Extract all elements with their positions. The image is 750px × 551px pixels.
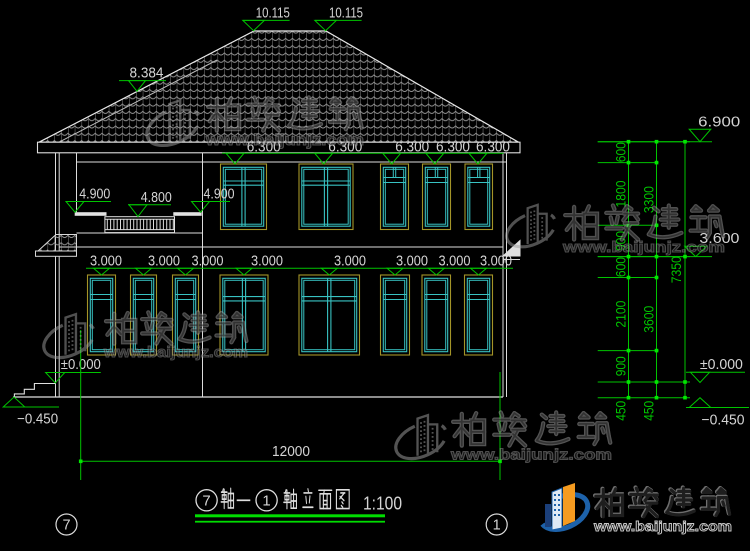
- svg-text:7350: 7350: [668, 256, 684, 283]
- svg-text:6.300: 6.300: [395, 139, 429, 155]
- svg-text:900: 900: [613, 356, 629, 376]
- svg-text:www.baijunjz.com: www.baijunjz.com: [593, 518, 732, 534]
- svg-text:8.384: 8.384: [130, 66, 164, 82]
- svg-text:www.baijunjz.com: www.baijunjz.com: [450, 447, 612, 464]
- svg-text:3.000: 3.000: [396, 253, 428, 269]
- svg-text:4.900: 4.900: [79, 186, 110, 202]
- svg-text:12000: 12000: [272, 444, 310, 460]
- svg-text:6.300: 6.300: [436, 139, 470, 155]
- svg-text:1800: 1800: [613, 180, 629, 207]
- svg-text:3.000: 3.000: [148, 253, 180, 269]
- svg-text:600: 600: [613, 257, 629, 277]
- svg-text:2100: 2100: [613, 300, 629, 327]
- svg-text:3.000: 3.000: [251, 253, 283, 269]
- svg-text:7: 7: [62, 518, 70, 534]
- svg-text:3.000: 3.000: [90, 253, 122, 269]
- svg-text:7: 7: [202, 493, 210, 510]
- svg-text:4.900: 4.900: [204, 186, 235, 202]
- svg-text:www.baijunjz.com: www.baijunjz.com: [562, 239, 725, 256]
- svg-text:−0.450: −0.450: [17, 411, 58, 427]
- svg-text:6.300: 6.300: [476, 139, 510, 155]
- svg-text:6.900: 6.900: [698, 114, 740, 130]
- svg-text:±0.000: ±0.000: [700, 357, 743, 373]
- svg-text:450: 450: [613, 401, 629, 421]
- svg-text:3.000: 3.000: [334, 253, 366, 269]
- svg-text:450: 450: [641, 401, 657, 421]
- svg-text:4.800: 4.800: [141, 190, 172, 206]
- svg-text:−0.450: −0.450: [702, 412, 745, 428]
- svg-text:1: 1: [493, 518, 501, 534]
- svg-text:1: 1: [262, 493, 270, 510]
- svg-text:www.baijunjz.com: www.baijunjz.com: [103, 345, 248, 361]
- svg-text:10.115: 10.115: [256, 6, 290, 22]
- svg-text:3.000: 3.000: [439, 253, 471, 269]
- svg-text:3600: 3600: [641, 306, 657, 333]
- svg-text:3.000: 3.000: [192, 253, 224, 269]
- svg-text:3.000: 3.000: [480, 253, 512, 269]
- svg-text:1:100: 1:100: [363, 493, 402, 513]
- svg-text:10.115: 10.115: [329, 6, 363, 22]
- svg-text:www.baijunjz.com: www.baijunjz.com: [205, 132, 364, 149]
- svg-text:600: 600: [613, 142, 629, 162]
